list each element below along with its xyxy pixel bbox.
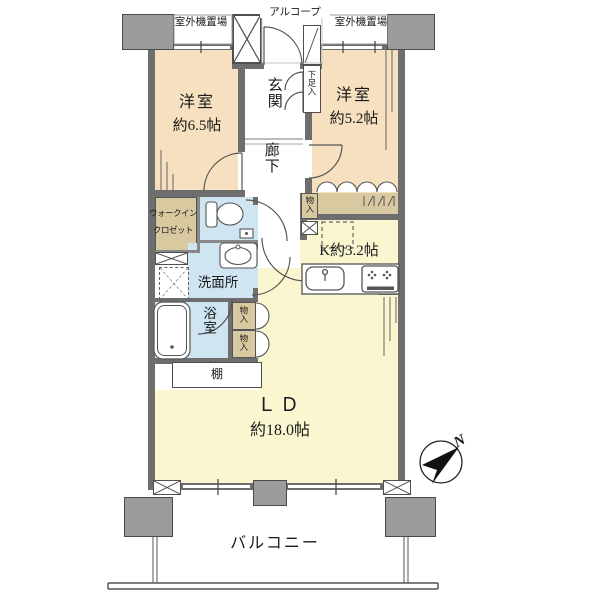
- pillar-bottom-left: [124, 497, 173, 537]
- outdoor-unit-left-label: 室外機置場: [166, 17, 236, 28]
- outdoor-unit-right-label: 室外機置場: [326, 17, 396, 28]
- wall-toilet-bottom: [200, 240, 258, 243]
- wall-toilet-right-a: [253, 197, 258, 205]
- shoe-cabinet-divider: [304, 64, 320, 66]
- window-bedroom2-top: [322, 46, 382, 49]
- washroom-label: 洗面所: [187, 276, 249, 290]
- living-size-label: 約18.0帖: [238, 423, 322, 440]
- bedroom1-name-label: 洋室: [165, 95, 229, 112]
- storage-bath-label-1: 物入: [239, 306, 248, 323]
- wall-bedroom2-left-b: [305, 178, 312, 193]
- storage-bath-box-2: 物入: [232, 330, 256, 358]
- meter-box: [301, 221, 318, 235]
- balcony-label: バルコニー: [222, 536, 328, 553]
- bathroom-floor: [152, 302, 232, 360]
- bedroom2-closet-floor: [312, 193, 398, 214]
- washing-machine-pan: [159, 267, 189, 300]
- wall-right: [398, 44, 405, 490]
- storage-corridor-box: 物入: [301, 193, 318, 219]
- shutter-box-right: [383, 480, 411, 495]
- living-name-label: ＬＤ: [248, 396, 312, 416]
- storage-bath-box-1: 物入: [232, 302, 256, 330]
- floorplan-canvas: 下足入 物入 物入 物入: [0, 0, 600, 600]
- wall-toilet-right-b: [253, 243, 258, 249]
- entrance-door-arc: [264, 27, 302, 65]
- x-mark: [234, 16, 260, 62]
- x-mark: [384, 481, 410, 494]
- walkin-closet-label-1: ウォークイン: [149, 209, 197, 218]
- bedroom2-name-label: 洋室: [322, 88, 386, 105]
- balcony-railing: [108, 583, 438, 589]
- entrance-label: 玄関: [265, 77, 281, 109]
- compass-needle: [422, 447, 459, 484]
- window-living-right: [288, 485, 380, 488]
- pillar-bottom-right: [385, 497, 436, 537]
- living-mid-floor: [258, 268, 300, 483]
- shoe-cabinet-box: 下足入: [303, 25, 321, 113]
- alcove-label: アルコープ: [260, 7, 330, 18]
- kitchen-label: K約3.2帖: [303, 244, 395, 260]
- window-living-left: [183, 485, 250, 488]
- bathroom-label: 浴室: [201, 306, 215, 335]
- x-mark: [156, 253, 187, 264]
- genkan-closet-arc-2: [285, 92, 303, 110]
- wall-bedroom1-bottom: [148, 190, 245, 197]
- compass: N: [420, 431, 469, 484]
- center-wall-block: [253, 480, 287, 506]
- shoe-cabinet-label: 下足入: [307, 70, 316, 96]
- wall-counter-stub: [378, 291, 405, 295]
- bedroom1-size-label: 約6.5帖: [157, 119, 237, 135]
- storage-corridor-label: 物入: [305, 196, 314, 213]
- x-mark: [154, 481, 180, 494]
- toilet-floor: [200, 197, 258, 243]
- x-mark: [302, 222, 317, 234]
- wall-wic-right: [197, 197, 200, 252]
- wall-left: [148, 44, 155, 490]
- shelf-label: 棚: [172, 368, 262, 381]
- wic-counter-box: [155, 252, 188, 265]
- x-mark-dashed: [160, 268, 188, 299]
- storage-bath-label-2: 物入: [239, 334, 248, 351]
- bedroom2-size-label: 約5.2帖: [314, 112, 394, 128]
- wall-corridor-left-a: [238, 63, 245, 152]
- corridor-label: 廊下: [262, 142, 278, 174]
- window-bedroom1-top: [173, 46, 230, 49]
- compass-north-label: N: [450, 431, 469, 451]
- genkan-closet-arc-1: [285, 72, 303, 90]
- pipe-space-box: [232, 14, 262, 64]
- shoe-cabinet-diagonal: [304, 26, 319, 64]
- walkin-closet-label-2: クロゼット: [149, 226, 197, 235]
- shutter-box-left: [153, 480, 181, 495]
